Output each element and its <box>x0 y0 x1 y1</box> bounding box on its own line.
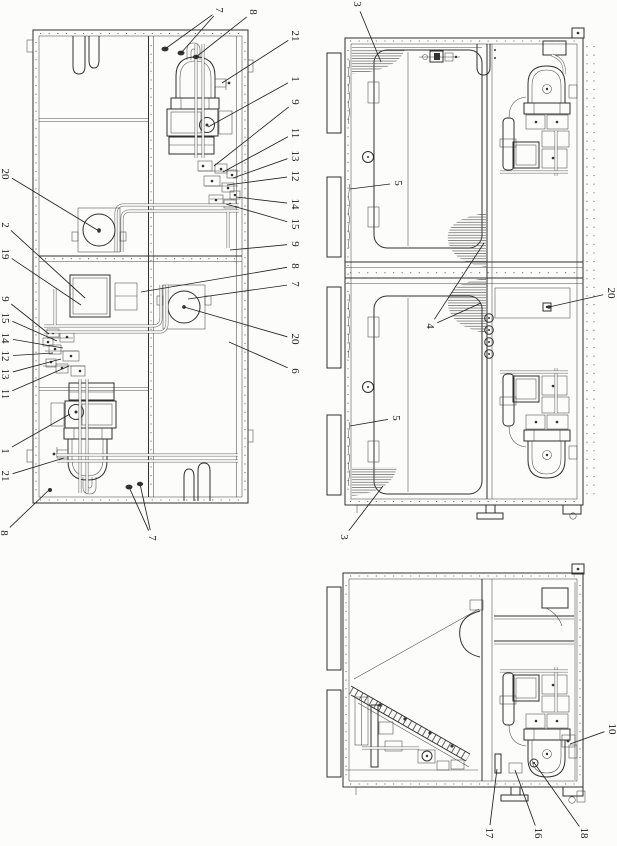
leader-line <box>515 770 535 825</box>
callout-label-8: 8 <box>0 530 10 536</box>
callout-label-6: 6 <box>289 368 301 374</box>
callout-label-19: 19 <box>0 249 11 261</box>
callout-label-7: 7 <box>289 281 301 287</box>
callout-label-5: 5 <box>390 415 402 421</box>
callouts-side-view: 3542053 <box>338 1 617 540</box>
callout-label-11: 11 <box>289 128 301 139</box>
coil-hatch <box>352 49 405 74</box>
callout-label-15: 15 <box>0 313 11 325</box>
leader-line <box>226 204 287 222</box>
callout-label-1: 1 <box>289 76 301 82</box>
compressor-assembly <box>500 667 577 777</box>
leader-line <box>535 764 579 826</box>
leader-line <box>12 178 99 231</box>
callout-label-14: 14 <box>0 333 11 345</box>
coil-hatch <box>448 213 486 267</box>
callout-label-13: 13 <box>0 369 11 381</box>
leader-line <box>11 230 85 298</box>
callout-label-15: 15 <box>289 219 301 231</box>
callout-label-1: 1 <box>0 448 11 454</box>
callout-label-8: 8 <box>247 9 259 15</box>
figure-side-view <box>327 28 594 519</box>
condenser-grille <box>327 415 341 495</box>
electrical-box <box>70 275 110 317</box>
leader-line <box>236 197 287 203</box>
leader-line <box>229 342 288 368</box>
technical-drawing: 7821191113121415987206202199151412131112… <box>0 0 617 846</box>
leader-line <box>223 137 288 172</box>
callout-label-18: 18 <box>578 828 590 840</box>
callout-label-4: 4 <box>424 323 436 329</box>
refrigeration-circuit-b <box>43 208 210 501</box>
callout-label-7: 7 <box>146 535 158 541</box>
callout-label-3: 3 <box>338 534 350 540</box>
air-baffle <box>354 609 479 679</box>
leader-line <box>350 419 388 426</box>
leader-line <box>13 359 61 372</box>
leader-line <box>490 769 497 825</box>
leader-line <box>350 184 390 189</box>
leader-line <box>222 40 288 83</box>
callout-label-20: 20 <box>289 334 301 346</box>
callout-label-20: 20 <box>0 169 11 181</box>
condenser-grille <box>327 287 341 368</box>
callout-label-12: 12 <box>289 171 301 182</box>
unit-frame-outline <box>33 30 248 503</box>
coil-hatch <box>448 278 486 333</box>
leader-dot <box>547 305 550 308</box>
callout-label-9: 9 <box>0 296 11 302</box>
condenser-grille <box>327 587 341 670</box>
leader-line <box>12 414 70 447</box>
compressor-assembly-lower <box>500 368 577 478</box>
figure-top-view <box>27 30 253 503</box>
condenser-grille <box>327 177 341 257</box>
leader-line <box>233 159 287 178</box>
callout-label-5: 5 <box>392 180 404 186</box>
leader-line <box>184 307 287 337</box>
leader-line <box>230 245 287 250</box>
callout-label-16: 16 <box>532 828 544 840</box>
leader-line <box>12 258 81 305</box>
figure-end-view <box>327 564 585 803</box>
coil-hatch <box>352 467 397 496</box>
callout-label-21: 21 <box>0 471 11 482</box>
leader-line <box>549 295 603 307</box>
callout-label-9: 9 <box>289 241 301 247</box>
callout-label-9: 9 <box>289 99 301 105</box>
leader-line <box>214 107 289 166</box>
callout-label-8: 8 <box>289 263 301 269</box>
callout-label-10: 10 <box>606 724 617 736</box>
unit-frame-outline <box>345 38 583 505</box>
leader-line <box>10 489 50 527</box>
leader-line <box>13 458 64 474</box>
callout-label-17: 17 <box>483 828 495 840</box>
callout-label-12: 12 <box>0 351 11 362</box>
callout-label-3: 3 <box>351 1 363 7</box>
callout-label-14: 14 <box>289 199 301 211</box>
callout-label-11: 11 <box>0 389 11 400</box>
leader-dot <box>182 305 185 308</box>
leader-dot <box>97 229 100 232</box>
condenser-grille <box>327 690 341 777</box>
scanned-document-page: 7821191113121415987206202199151412131112… <box>0 0 617 846</box>
callout-label-21: 21 <box>289 31 301 42</box>
callout-label-20: 20 <box>605 288 617 300</box>
compressor-assembly-upper <box>500 66 577 176</box>
leader-line <box>196 17 247 57</box>
refrigeration-circuit-a <box>73 36 240 329</box>
condenser-grille <box>327 53 341 133</box>
callout-label-13: 13 <box>289 151 301 163</box>
callout-label-2: 2 <box>0 222 11 228</box>
leader-line <box>188 285 287 299</box>
callout-label-7: 7 <box>213 7 225 13</box>
